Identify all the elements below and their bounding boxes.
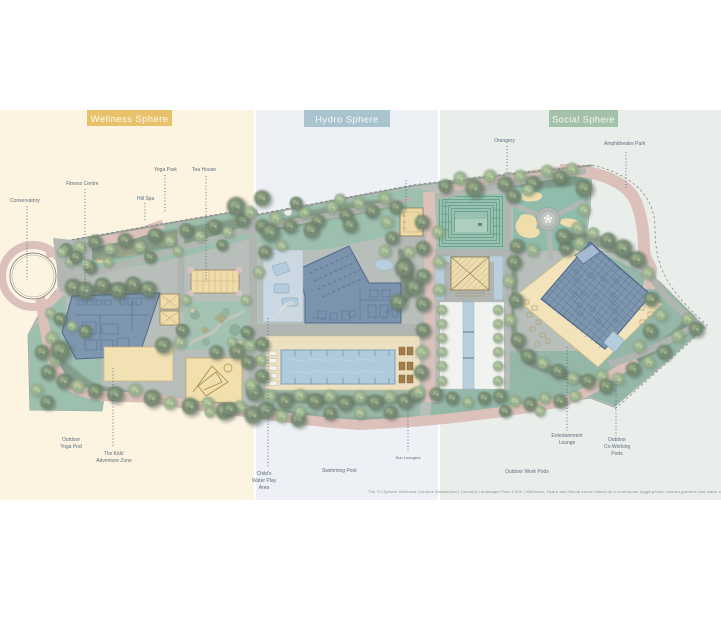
- svg-text:The Kids': The Kids': [104, 451, 125, 457]
- svg-text:Sun Loungers: Sun Loungers: [396, 455, 421, 460]
- svg-text:Tea House: Tea House: [192, 167, 216, 173]
- svg-text:Outdoor: Outdoor: [608, 437, 626, 443]
- svg-text:Outdoor Work Pods: Outdoor Work Pods: [505, 469, 549, 475]
- svg-text:Amphitheatre Park: Amphitheatre Park: [604, 141, 646, 147]
- svg-text:Lounge: Lounge: [559, 440, 576, 446]
- svg-text:Orangery: Orangery: [494, 138, 515, 144]
- svg-text:Conservatory: Conservatory: [10, 198, 40, 204]
- svg-text:Adventure Zone: Adventure Zone: [96, 458, 132, 464]
- svg-text:Water Play: Water Play: [252, 478, 277, 484]
- svg-text:Outdoor: Outdoor: [62, 437, 80, 443]
- svg-text:Entertainment: Entertainment: [551, 433, 583, 439]
- svg-text:Fitness Centre: Fitness Centre: [66, 181, 99, 187]
- svg-text:Co-Working: Co-Working: [604, 444, 631, 450]
- svg-text:Swimming Pool: Swimming Pool: [322, 468, 356, 474]
- svg-text:Social Sphere: Social Sphere: [552, 115, 615, 126]
- svg-text:The Tri-Sphere Wellness Campus: The Tri-Sphere Wellness Campus Masterpla…: [368, 489, 721, 494]
- svg-text:Wellness Sphere: Wellness Sphere: [91, 114, 169, 125]
- svg-text:Hydro Sphere: Hydro Sphere: [315, 115, 378, 126]
- svg-text:Pods: Pods: [611, 451, 623, 457]
- svg-text:Hill Spa: Hill Spa: [137, 196, 154, 202]
- svg-text:Yoga Park: Yoga Park: [154, 167, 177, 173]
- svg-text:Yoga Pod: Yoga Pod: [60, 444, 82, 450]
- svg-text:Area: Area: [259, 485, 270, 491]
- svg-text:Child's: Child's: [257, 471, 272, 477]
